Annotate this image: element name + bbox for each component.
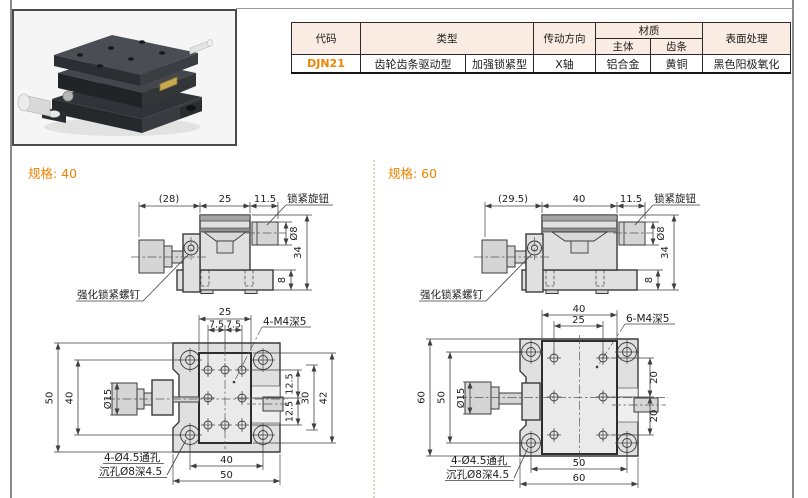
dim-right-b-60: 20: [649, 410, 660, 423]
dim-knob-60: 11.5: [620, 194, 642, 205]
dim-pitch-r-40: 7.5: [226, 320, 241, 331]
dim-base-40: 8: [277, 277, 288, 283]
dim-table-w-60: 40: [573, 304, 586, 315]
side-60-geometry: [474, 215, 653, 294]
plan-view-60: 40 25 6-M4深5 60 50 Ø15 20 20 50: [398, 303, 798, 498]
dim-right-b-40: 12.5: [285, 401, 296, 422]
tap-label-40: 4-M4深5: [263, 316, 306, 328]
side-40-geometry: [131, 215, 286, 294]
rear-shaft: [190, 40, 213, 55]
dim-hole-pitch-60: 50: [437, 391, 448, 404]
plan-60-geometry: [458, 335, 668, 461]
dim-body-60: 40: [573, 194, 586, 205]
dim-right-a-60: 20: [649, 371, 660, 384]
tap-label-60: 6-M4深5: [626, 313, 669, 325]
header-type: 类型: [361, 23, 534, 55]
note1-60: 4-Ø4.5通孔: [451, 454, 508, 467]
lock-screw-label-60: 强化锁紧螺钉: [420, 288, 483, 301]
catalog-page: 代码 类型 传动方向 材质 表面处理 主体 齿条 DJN21 齿轮齿条驱动型 加…: [0, 0, 808, 498]
dim-knob-dia-40: Ø8: [288, 226, 300, 240]
table-row: DJN21 齿轮齿条驱动型 加强锁紧型 X轴 铝合金 黄铜 黑色阳极氧化: [292, 55, 791, 74]
note2-40: 沉孔Ø8深4.5: [99, 465, 162, 478]
dim-bottom-a-60: 50: [573, 458, 586, 469]
dim-hole-pitch-40: 40: [65, 392, 76, 405]
dim-outer-60: 60: [417, 391, 428, 404]
product-photo-illustration: [14, 11, 235, 144]
cell-material-body: 铝合金: [596, 55, 651, 74]
note2-60: 沉孔Ø8深4.5: [446, 468, 509, 481]
dim-right-a-40: 12.5: [285, 373, 296, 394]
dim-bottom-b-60: 60: [573, 473, 586, 484]
dim-bottom-b-40: 50: [220, 470, 233, 481]
dim-pitch-l-40: 7.5: [209, 320, 224, 331]
dim-outer-40: 50: [45, 392, 56, 405]
cell-material-rack: 黄铜: [651, 55, 703, 74]
note1-40: 4-Ø4.5通孔: [104, 451, 161, 464]
dim-overall-40: (28): [159, 194, 180, 205]
cell-type-b: 加强锁紧型: [466, 55, 534, 74]
section-label-40: 规格: 40: [28, 163, 77, 182]
spec-table: 代码 类型 传动方向 材质 表面处理 主体 齿条 DJN21 齿轮齿条驱动型 加…: [291, 22, 791, 74]
side-view-60: (29.5) 40 11.5 锁紧旋钮 Ø8 34 8 强化锁紧螺钉: [400, 185, 795, 303]
dim-knob-dia-plan-60: Ø15: [455, 388, 467, 409]
header-material: 材质: [596, 23, 703, 39]
cell-type-a: 齿轮齿条驱动型: [361, 55, 466, 74]
page-top-rule: [236, 8, 794, 9]
dim-right-c-40: 30: [301, 392, 312, 405]
lock-knob-label-60: 锁紧旋钮: [654, 192, 696, 205]
header-code: 代码: [292, 23, 361, 55]
plan-40-geometry: [106, 343, 290, 452]
header-direction: 传动方向: [534, 23, 596, 55]
dim-bottom-a-40: 40: [220, 455, 233, 466]
dim-knob-dia-plan-40: Ø15: [102, 389, 114, 410]
cell-direction: X轴: [534, 55, 596, 74]
header-material-body: 主体: [596, 39, 651, 55]
dim-right-d-40: 42: [319, 392, 330, 405]
cell-surface: 黑色阳极氧化: [703, 55, 791, 74]
lock-knob-label-40: 锁紧旋钮: [287, 192, 329, 205]
dim-knob-dia-60: Ø8: [655, 226, 667, 240]
dim-body-40: 25: [219, 194, 232, 205]
section-divider: [373, 160, 375, 498]
dim-table-w-40: 25: [219, 307, 232, 318]
dim-overall-60: (29.5): [498, 194, 528, 205]
header-material-rack: 齿条: [651, 39, 703, 55]
plan-view-40: 25 7.5 7.5 4-M4深5 50 40 Ø15 12.5 12.5: [20, 303, 365, 498]
dim-height-40: 34: [293, 246, 304, 259]
dim-knob-40: 11.5: [254, 194, 276, 205]
product-photo: [12, 9, 237, 146]
dim-base-60: 8: [644, 277, 655, 283]
side-view-40: (28) 25 11.5 锁紧旋钮 Ø8 34 8 强化锁紧螺钉: [20, 185, 365, 303]
section-label-60: 规格: 60: [388, 163, 437, 182]
header-surface: 表面处理: [703, 23, 791, 55]
dim-height-60: 34: [660, 246, 671, 259]
lock-screw-label-40: 强化锁紧螺钉: [77, 288, 140, 301]
dim-pitch-60: 25: [572, 315, 585, 326]
cell-code: DJN21: [292, 55, 361, 74]
